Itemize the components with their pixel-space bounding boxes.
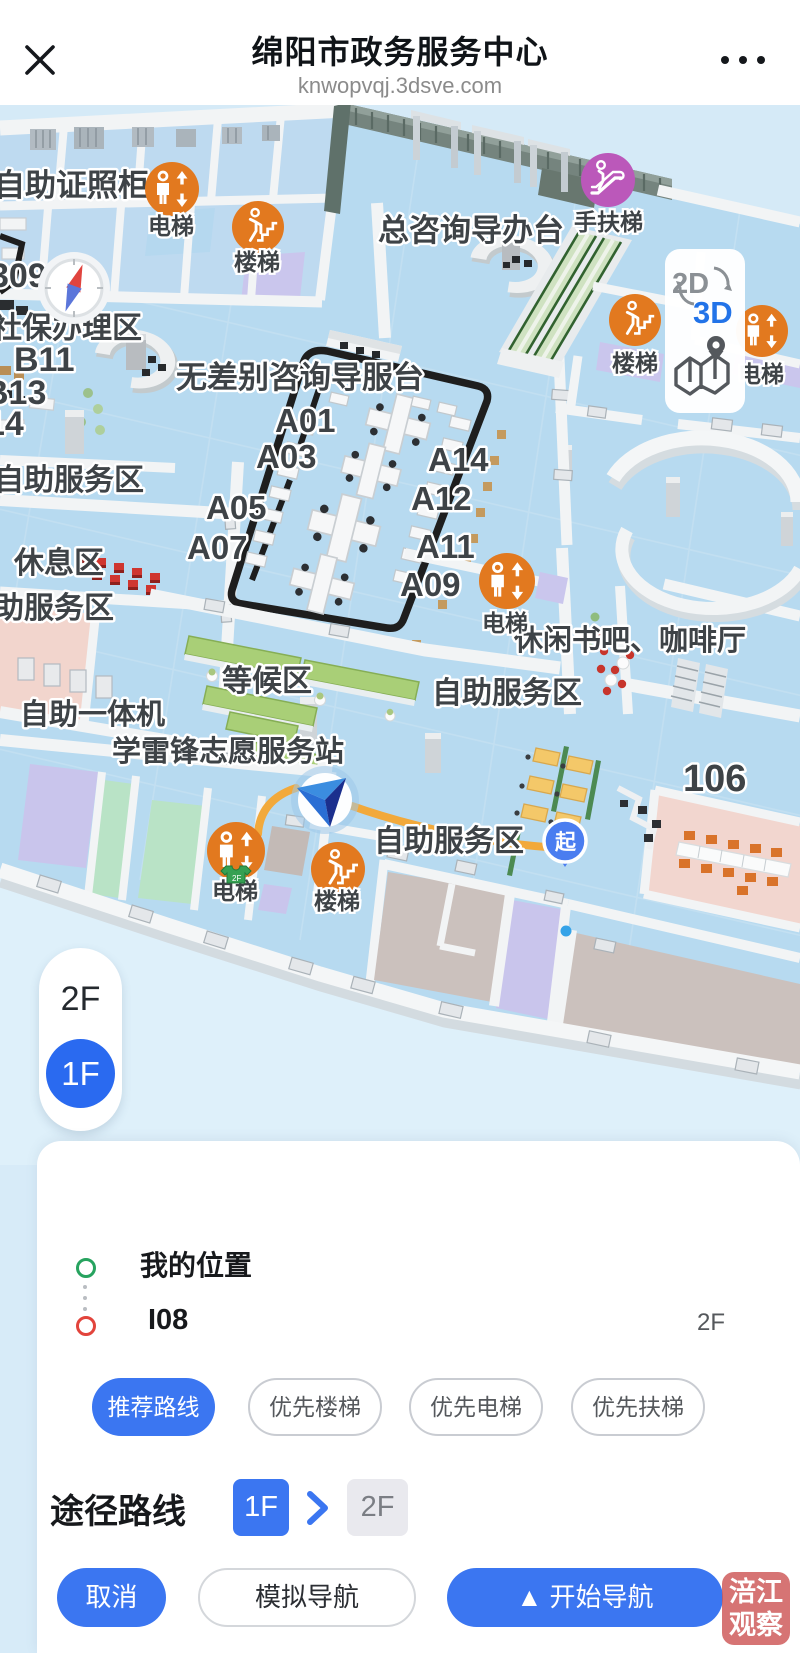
svg-text:自助服务区: 自助服务区 [0,464,144,497]
svg-text:A09: A09 [400,566,461,603]
svg-text:A01: A01 [275,402,336,439]
svg-text:A05: A05 [206,489,267,526]
svg-text:楼梯: 楼梯 [234,249,280,275]
svg-text:3D: 3D [693,295,733,330]
svg-text:等候区: 等候区 [222,664,312,698]
svg-text:楼梯: 楼梯 [612,350,658,376]
svg-text:电梯: 电梯 [482,610,528,636]
svg-text:总咨询导办台: 总咨询导办台 [378,213,564,248]
svg-text:休息区: 休息区 [13,546,104,580]
svg-text:自助服务区: 自助服务区 [432,677,582,710]
svg-text:自助服务区: 自助服务区 [0,592,114,625]
svg-text:A07: A07 [187,529,248,566]
svg-text:A03: A03 [256,438,317,475]
svg-text:A14: A14 [428,441,489,478]
svg-text:无差别咨询导服台: 无差别咨询导服台 [176,360,424,395]
svg-text:A11: A11 [416,528,475,565]
svg-text:106: 106 [683,758,746,800]
svg-text:自助证照柜: 自助证照柜 [0,168,149,203]
svg-text:自助一体机: 自助一体机 [20,698,165,731]
svg-text:电梯: 电梯 [148,213,194,239]
svg-text:学雷锋志愿服务站: 学雷锋志愿服务站 [112,734,344,768]
svg-text:2F: 2F [232,874,241,883]
svg-text:14: 14 [0,405,24,443]
svg-text:楼梯: 楼梯 [314,888,360,914]
svg-text:手扶梯: 手扶梯 [574,209,643,235]
svg-text:A12: A12 [411,480,472,517]
svg-text:起: 起 [554,830,577,854]
svg-text:自助服务区: 自助服务区 [374,825,524,858]
svg-text:休闲书吧、咖啡厅: 休闲书吧、咖啡厅 [513,624,746,657]
